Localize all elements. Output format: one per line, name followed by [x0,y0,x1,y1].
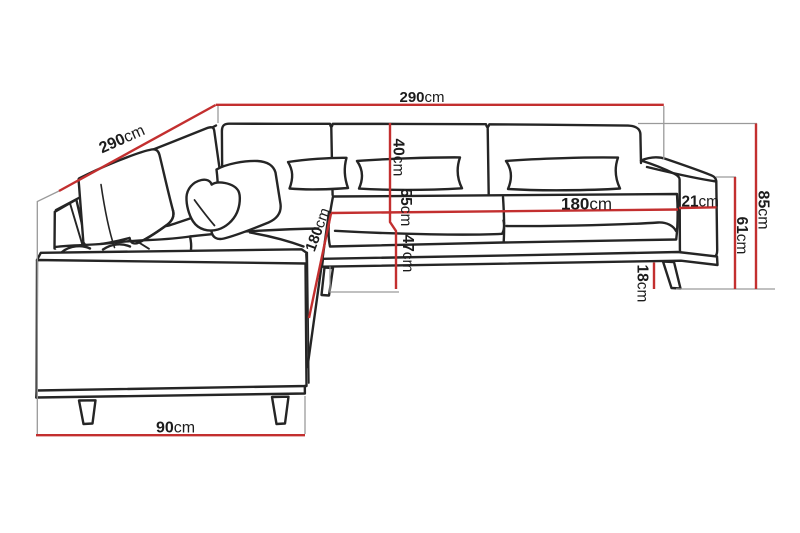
svg-text:18cm: 18cm [634,265,651,303]
svg-text:61cm: 61cm [733,217,750,255]
svg-text:40cm: 40cm [390,139,407,177]
svg-text:85cm: 85cm [755,191,772,230]
svg-text:47cm: 47cm [399,235,416,273]
svg-text:180cm: 180cm [561,195,612,214]
svg-text:90cm: 90cm [156,420,195,437]
svg-text:21cm: 21cm [682,193,719,210]
svg-text:55cm: 55cm [397,189,414,227]
svg-text:290cm: 290cm [400,89,445,106]
